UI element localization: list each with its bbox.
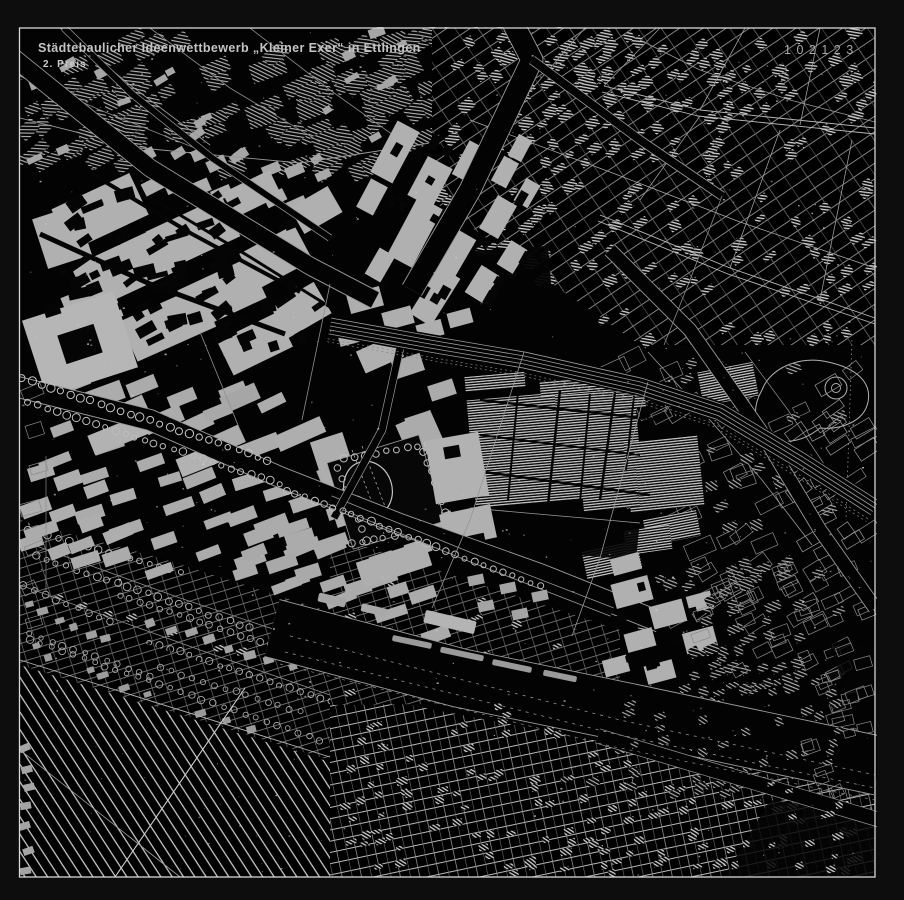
svg-text:Städtebaulicher Ideenwettbewer: Städtebaulicher Ideenwettbewerb „Kleiner… [38,41,421,55]
svg-text:2. Preis: 2. Preis [43,59,87,70]
svg-text:102123: 102123 [784,43,859,57]
